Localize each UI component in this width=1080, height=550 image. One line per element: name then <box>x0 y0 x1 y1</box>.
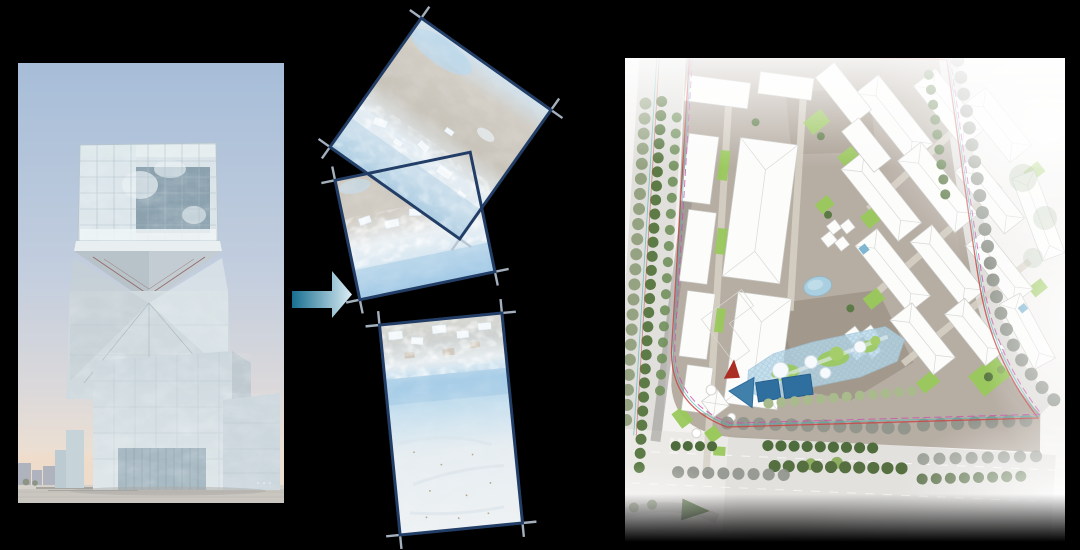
fascia <box>74 241 222 251</box>
site-plan <box>625 58 1065 542</box>
texture-panel-3 <box>364 298 538 550</box>
building-shadow <box>70 487 266 496</box>
top-cube <box>78 143 218 241</box>
process-arrow-icon <box>292 271 352 318</box>
building-photo <box>18 63 284 503</box>
texture-panels <box>280 0 620 550</box>
right-annex <box>223 393 280 490</box>
bottom-fade <box>625 494 1065 542</box>
presentation-canvas <box>0 0 1080 550</box>
